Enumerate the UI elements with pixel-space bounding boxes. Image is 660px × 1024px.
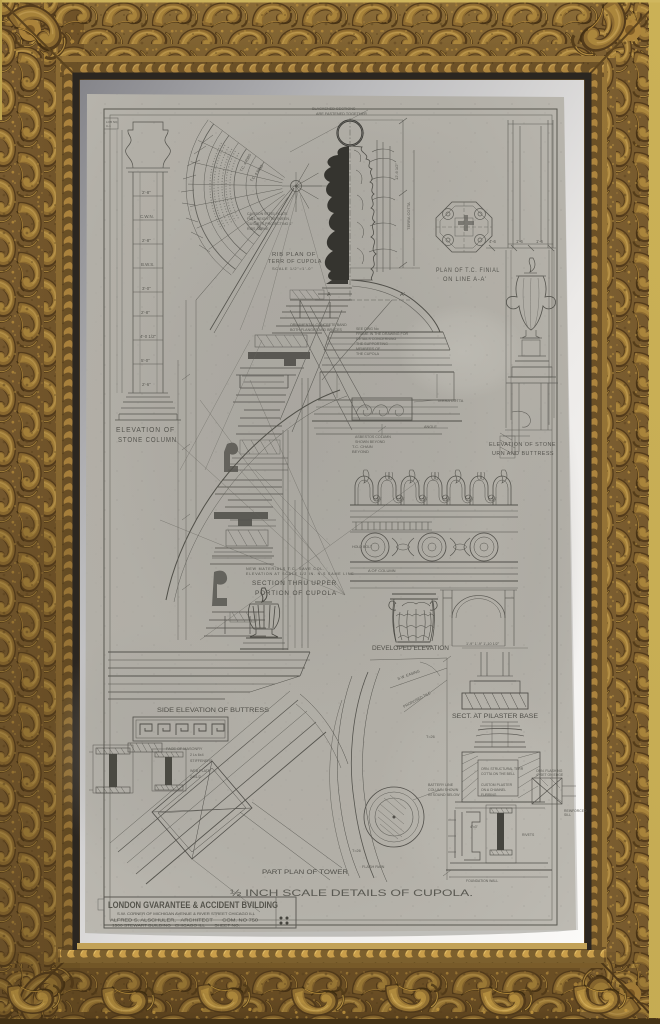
svg-text:2'-8": 2'-8" — [142, 190, 151, 195]
svg-text:RIVETS: RIVETS — [522, 833, 535, 837]
svg-text:ORN. STRUCTURAL TERR: ORN. STRUCTURAL TERR — [481, 767, 524, 771]
svg-text:THE SUPPORTING: THE SUPPORTING — [356, 342, 388, 346]
svg-text:A OF COLUMN: A OF COLUMN — [368, 568, 396, 573]
svg-text:ELEVATION AT SCALE 1/2 IN. N-S: ELEVATION AT SCALE 1/2 IN. N-S SAME LINE — [246, 572, 354, 576]
svg-text:1'-6: 1'-6 — [536, 239, 544, 244]
svg-text:SIDE ELEVATION OF BUTTRESS: SIDE ELEVATION OF BUTTRESS — [157, 707, 269, 714]
svg-text:DETAILS CONCERNING: DETAILS CONCERNING — [356, 337, 396, 341]
svg-text:ORNAMENTAL CONCRETE BAND: ORNAMENTAL CONCRETE BAND — [290, 323, 347, 327]
svg-text:FULL HEIGHT BETWEEN: FULL HEIGHT BETWEEN — [247, 217, 289, 221]
svg-text:SECT. AT PILASTER BASE: SECT. AT PILASTER BASE — [452, 714, 538, 720]
svg-text:TERRA COTTA: TERRA COTTA — [437, 399, 464, 403]
svg-text:RIBS ABOVE: RIBS ABOVE — [247, 227, 269, 231]
svg-text:FLASH RAIN: FLASH RAIN — [362, 865, 385, 869]
svg-text:ELEVATION OF: ELEVATION OF — [116, 425, 175, 434]
svg-text:FRAME IN THE DRAWING FOR: FRAME IN THE DRAWING FOR — [356, 332, 409, 336]
svg-text:2'-8": 2'-8" — [141, 310, 150, 315]
svg-text:PART PLAN OF TOWER: PART PLAN OF TOWER — [262, 869, 348, 876]
svg-text:4'-0 1/2": 4'-0 1/2" — [140, 334, 157, 339]
svg-text:GUSSETS PROJECTING 1": GUSSETS PROJECTING 1" — [247, 222, 293, 226]
svg-text:MEMBERS OF: MEMBERS OF — [356, 347, 381, 351]
svg-text:1'-9" 1'-9" 1'-10 1/2": 1'-9" 1'-9" 1'-10 1/2" — [466, 642, 500, 646]
svg-text:ALFRED S. ALSCHULER, ARCHITE: ALFRED S. ALSCHULER, ARCHITECT COM. NO 7… — [110, 918, 259, 923]
svg-text:HOLD BOLT: HOLD BOLT — [352, 545, 373, 549]
svg-text:4'-6: 4'-6 — [489, 239, 497, 244]
svg-text:CAISSON STEEL PLATE: CAISSON STEEL PLATE — [247, 212, 288, 216]
svg-text:2 Ls 6x4: 2 Ls 6x4 — [190, 753, 204, 757]
svg-text:C.W.N.: C.W.N. — [140, 214, 154, 219]
svg-text:COTTA ON THE BELL: COTTA ON THE BELL — [481, 772, 515, 776]
svg-text:ELEVATION OF STONE: ELEVATION OF STONE — [489, 442, 556, 448]
svg-text:BOTH FLANGES AND BRACES: BOTH FLANGES AND BRACES — [290, 328, 343, 332]
svg-text:DEVELOPED ELEVATION: DEVELOPED ELEVATION — [372, 645, 449, 652]
svg-text:4" SET ON EDGE: 4" SET ON EDGE — [536, 773, 564, 777]
svg-text:T=26: T=26 — [426, 735, 435, 739]
svg-text:ASBESTOS COLUMN: ASBESTOS COLUMN — [355, 435, 391, 439]
svg-text:12'-6 1/2": 12'-6 1/2" — [394, 163, 399, 180]
svg-text:4"x3": 4"x3" — [470, 825, 479, 829]
svg-text:FOUNDATION WALL: FOUNDATION WALL — [466, 879, 498, 883]
svg-text:TERR OF CUPOLA: TERR OF CUPOLA — [268, 259, 322, 265]
svg-text:2'-8": 2'-8" — [142, 238, 151, 243]
svg-text:S.W. CORNER OF MICHIGAN AVENUE: S.W. CORNER OF MICHIGAN AVENUE & RIVER S… — [117, 912, 255, 916]
svg-text:1'-6: 1'-6 — [516, 239, 524, 244]
svg-text:COLUMN SHOWN: COLUMN SHOWN — [428, 788, 459, 792]
svg-text:ANGLE: ANGLE — [424, 425, 437, 429]
svg-text:BATTERY LINE: BATTERY LINE — [428, 783, 454, 787]
svg-text:5'-0": 5'-0" — [141, 358, 150, 363]
svg-text:C-1: C-1 — [106, 124, 111, 128]
svg-text:NEW MATERIALS T.C. SAVE COL.: NEW MATERIALS T.C. SAVE COL. — [246, 567, 325, 571]
svg-text:ON A CHANNEL: ON A CHANNEL — [481, 788, 506, 792]
svg-text:SILL: SILL — [564, 813, 571, 817]
svg-text:URN AND BUTTRESS: URN AND BUTTRESS — [492, 451, 554, 457]
svg-text:FURRING: FURRING — [481, 793, 497, 797]
svg-text:BEYOND: BEYOND — [352, 449, 369, 454]
svg-text:B.W.S.: B.W.S. — [141, 262, 154, 267]
svg-text:TERRA COTTA: TERRA COTTA — [406, 202, 411, 230]
svg-text:SEE DWG No: SEE DWG No — [356, 327, 379, 331]
svg-text:STIFFENERS: STIFFENERS — [190, 759, 213, 763]
svg-text:ON LINE A-A': ON LINE A-A' — [443, 277, 487, 283]
svg-text:SECTION THRU UPPER: SECTION THRU UPPER — [252, 580, 337, 587]
svg-text:T=26: T=26 — [352, 849, 361, 853]
svg-text:RIB PLAN OF: RIB PLAN OF — [272, 252, 316, 258]
svg-text:1500 STEWART BUILDING CHICAG: 1500 STEWART BUILDING CHICAGO ILL SHEET … — [112, 924, 240, 928]
svg-text:PLAN OF T.C. FINIAL: PLAN OF T.C. FINIAL — [436, 268, 500, 274]
svg-text:3'-0": 3'-0" — [142, 286, 151, 291]
svg-text:STONE COLUMN: STONE COLUMN — [118, 435, 177, 444]
svg-text:BLACKENED SECTIONS: BLACKENED SECTIONS — [312, 107, 356, 111]
svg-text:LONDON GVARANTEE & ACCIDENT BV: LONDON GVARANTEE & ACCIDENT BVILDING — [108, 900, 278, 910]
svg-text:IN SOUND BELOW: IN SOUND BELOW — [428, 793, 460, 797]
svg-text:2'-6": 2'-6" — [142, 382, 151, 387]
svg-text:THE CUPOLA: THE CUPOLA — [356, 352, 380, 356]
svg-text:CUSTOM PLASTER: CUSTOM PLASTER — [481, 783, 513, 787]
svg-text:ARE FASTENED TOGETHER: ARE FASTENED TOGETHER — [316, 112, 367, 116]
